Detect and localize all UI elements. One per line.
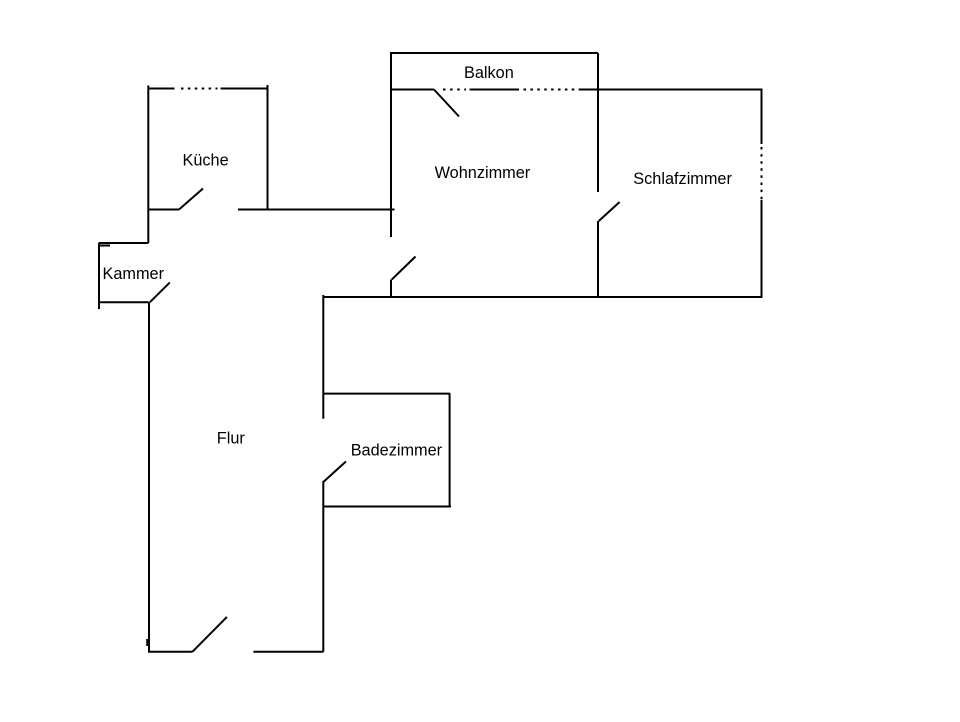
- svg-text:Flur: Flur: [217, 430, 246, 448]
- svg-text:Wohnzimmer: Wohnzimmer: [435, 164, 531, 182]
- svg-text:Küche: Küche: [183, 152, 229, 170]
- svg-text:Kammer: Kammer: [103, 265, 165, 283]
- svg-text:Schlafzimmer: Schlafzimmer: [633, 170, 732, 188]
- svg-text:Badezimmer: Badezimmer: [351, 442, 443, 460]
- svg-text:Balkon: Balkon: [464, 64, 514, 82]
